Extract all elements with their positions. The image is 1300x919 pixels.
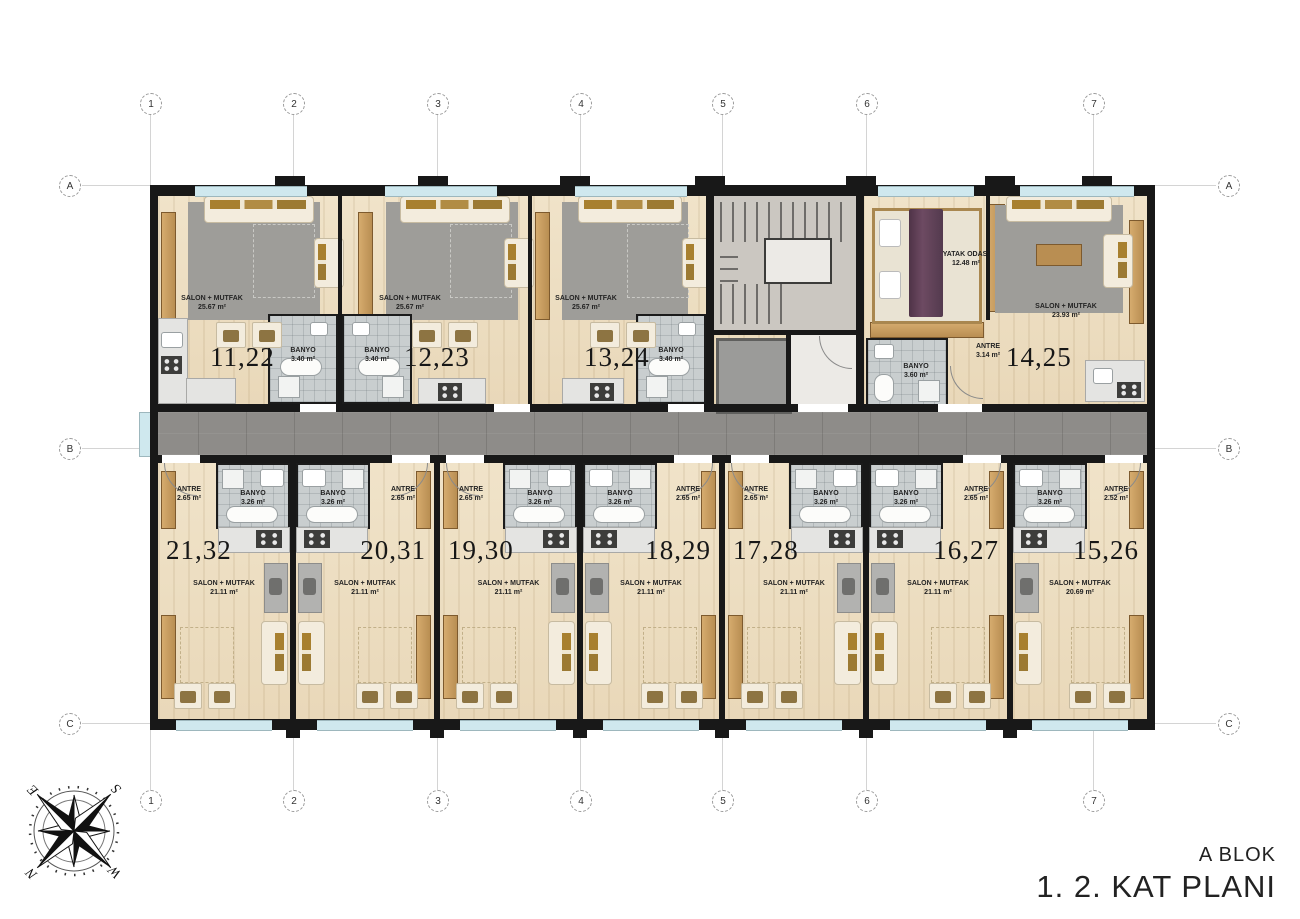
unit-20-31: BANYO3.26 m² ANTRE2.65 m² 20,31 SALON + …	[296, 463, 434, 719]
window	[603, 720, 699, 731]
door-opening	[446, 455, 484, 463]
room-label-banyo: BANYO3.40 m²	[270, 346, 336, 365]
bathroom: BANYO3.26 m²	[216, 463, 290, 529]
sofa-cushion	[875, 633, 884, 671]
bathroom-sink	[678, 322, 696, 336]
bathroom: BANYO3.26 m²	[583, 463, 657, 529]
wardrobe	[416, 615, 431, 699]
washer	[260, 469, 284, 487]
area-rug-outline	[1071, 627, 1125, 683]
grid-bubble-bot-4: 4	[570, 790, 592, 812]
unit-19-30: BANYO3.26 m² ANTRE2.65 m² 19,30 SALON + …	[440, 463, 577, 719]
stove	[304, 530, 330, 548]
unit-16-27: BANYO3.26 m² ANTRE2.65 m² 16,27 SALON + …	[869, 463, 1007, 719]
title-block: A BLOK 1. 2. KAT PLANI	[1036, 844, 1276, 905]
window	[878, 186, 974, 197]
compass-south: S	[109, 780, 125, 796]
stove	[1117, 382, 1141, 398]
armchair-cushion	[686, 244, 694, 280]
bathroom: BANYO3.26 m²	[296, 463, 370, 529]
armchair	[356, 683, 384, 709]
window	[460, 720, 556, 731]
plan-title: 1. 2. KAT PLANI	[1036, 869, 1276, 905]
armchair	[490, 683, 518, 709]
bathroom: BANYO3.40 m²	[342, 314, 412, 404]
room-label-banyo: BANYO3.26 m²	[871, 489, 941, 508]
stairwell	[714, 196, 856, 332]
grid-bubble-right-B: B	[1218, 438, 1240, 460]
unit-number: 21,32	[166, 535, 232, 566]
shower	[278, 376, 300, 398]
area-rug-outline	[358, 627, 412, 683]
grid-bubble-bot-1: 1	[140, 790, 162, 812]
bathroom: BANYO3.26 m²	[869, 463, 943, 529]
wall-core-right	[856, 185, 864, 412]
kitchen-counter	[186, 378, 236, 404]
bathtub	[874, 374, 894, 402]
area-rug-outline	[462, 627, 516, 683]
wardrobe	[989, 615, 1004, 699]
shower	[915, 469, 937, 489]
unit-17-28: BANYO3.26 m² ANTRE2.65 m² 17,28 SALON + …	[725, 463, 863, 719]
washer	[1019, 469, 1043, 487]
wall-divider	[528, 196, 532, 404]
grid-bubble-bot-5: 5	[712, 790, 734, 812]
grid-bubble-top-7: 7	[1083, 93, 1105, 115]
bathtub	[593, 506, 645, 523]
coffee-table	[1036, 244, 1082, 266]
stove	[256, 530, 282, 548]
washer	[302, 469, 326, 487]
bathroom: BANYO3.26 m²	[789, 463, 863, 529]
room-label-salon: SALON + MUTFAK25.67 m²	[538, 294, 634, 313]
door-swing	[950, 366, 983, 399]
bathtub	[513, 506, 565, 523]
wall-divider	[1007, 463, 1013, 719]
pillow	[879, 271, 901, 299]
stair-flight-rail	[720, 246, 738, 282]
armchair-cushion	[318, 244, 326, 280]
room-label-antre: ANTRE2.65 m²	[659, 485, 717, 504]
bathroom: BANYO3.60 m²	[866, 338, 948, 408]
stove	[877, 530, 903, 548]
door-opening	[162, 455, 200, 463]
bathtub	[879, 506, 931, 523]
grid-bubble-left-C: C	[59, 713, 81, 735]
pillow	[879, 219, 901, 247]
unit-12-23: BANYO3.40 m² SALON + MUTFAK25.67 m² 12,2…	[342, 196, 528, 404]
stove	[591, 530, 617, 548]
wall-core-left	[706, 185, 714, 412]
wall-tab	[846, 176, 876, 186]
grid-bubble-top-3: 3	[427, 93, 449, 115]
grid-bubble-top-1: 1	[140, 93, 162, 115]
unit-number: 11,22	[210, 342, 275, 373]
room-label-antre: ANTRE2.65 m²	[374, 485, 432, 504]
unit-number: 17,28	[733, 535, 799, 566]
area-rug-outline	[747, 627, 801, 683]
armchair	[456, 683, 484, 709]
shower	[918, 380, 940, 402]
wall-tab	[418, 176, 448, 186]
sofa-cushions	[1012, 200, 1104, 209]
area-rug-outline	[931, 627, 985, 683]
stove	[161, 356, 182, 374]
sofa-cushions	[584, 200, 674, 209]
block-name: A BLOK	[1036, 844, 1276, 867]
room-label-salon: SALON + MUTFAK20.69 m²	[1013, 579, 1147, 598]
room-label-banyo: BANYO3.26 m²	[505, 489, 575, 508]
bathroom-sink	[874, 344, 894, 359]
armchair	[675, 683, 703, 709]
wall-bedroom-divider	[986, 196, 990, 320]
grid-bubble-top-4: 4	[570, 93, 592, 115]
room-label-salon: SALON + MUTFAK21.11 m²	[158, 579, 290, 598]
unit-number: 14,25	[1006, 342, 1072, 373]
shower	[342, 469, 364, 489]
armchair-cushion	[508, 244, 516, 280]
grid-bubble-right-C: C	[1218, 713, 1240, 735]
grid-bubble-bot-7: 7	[1083, 790, 1105, 812]
sofa-cushion	[589, 633, 598, 671]
grid-bubble-top-2: 2	[283, 93, 305, 115]
door-opening	[494, 404, 530, 412]
armchair	[1069, 683, 1097, 709]
washer	[589, 469, 613, 487]
elevator	[716, 338, 792, 414]
wall-tab	[715, 730, 729, 738]
room-label-banyo: BANYO3.60 m²	[892, 362, 940, 381]
window	[1020, 186, 1134, 197]
wall-core-mid	[714, 330, 856, 335]
shower	[629, 469, 651, 489]
unit-15-26: BANYO3.26 m² ANTRE2.52 m² 15,26 SALON + …	[1013, 463, 1147, 719]
rug-inner	[450, 224, 512, 298]
armchair-cushion	[1118, 242, 1127, 278]
area-rug-outline	[643, 627, 697, 683]
wall-tab	[985, 176, 1015, 186]
sofa-cushion	[562, 633, 571, 671]
armchair	[1103, 683, 1131, 709]
shower	[646, 376, 668, 398]
wall-tab	[430, 730, 444, 738]
wall-tab	[1003, 730, 1017, 738]
room-label-banyo: BANYO3.26 m²	[218, 489, 288, 508]
shower	[1059, 469, 1081, 489]
bathroom: BANYO3.26 m²	[503, 463, 577, 529]
room-label-antre: ANTRE2.52 m²	[1087, 485, 1145, 504]
wall-divider	[434, 463, 440, 719]
sofa-cushion	[1019, 633, 1028, 671]
door-opening	[300, 404, 336, 412]
room-label-antre: ANTRE2.65 m²	[727, 485, 785, 504]
unit-14-25: YATAK ODASI12.48 m² BANYO3.60 m² ANTRE3.…	[864, 196, 1147, 404]
stove	[829, 530, 855, 548]
unit-number: 16,27	[933, 535, 999, 566]
area-rug-outline	[180, 627, 234, 683]
door-opening	[731, 455, 769, 463]
unit-11-22: BANYO3.40 m² SALON + MUTFAK25.67 m² 11,2…	[158, 196, 338, 404]
wardrobe	[870, 322, 984, 338]
unit-18-29: BANYO3.26 m² ANTRE2.65 m² 18,29 SALON + …	[583, 463, 719, 719]
bathtub	[799, 506, 851, 523]
shower	[795, 469, 817, 489]
stove	[1021, 530, 1047, 548]
bathtub	[306, 506, 358, 523]
armchair	[390, 683, 418, 709]
wall-divider	[338, 196, 342, 404]
washer	[833, 469, 857, 487]
grid-bubble-right-A: A	[1218, 175, 1240, 197]
bathroom: BANYO3.26 m²	[1013, 463, 1087, 529]
room-label-salon: SALON + MUTFAK21.11 m²	[725, 579, 863, 598]
room-label-antre: ANTRE2.65 m²	[947, 485, 1005, 504]
washer	[547, 469, 571, 487]
wall-tab	[695, 176, 725, 186]
window	[385, 186, 497, 197]
stove	[590, 383, 614, 401]
door-opening	[798, 404, 848, 412]
room-label-banyo: BANYO3.26 m²	[791, 489, 861, 508]
wall-tab	[560, 176, 590, 186]
door-swing	[819, 336, 852, 369]
armchair	[208, 683, 236, 709]
wall-tab	[1082, 176, 1112, 186]
grid-bubble-bot-2: 2	[283, 790, 305, 812]
window	[575, 186, 687, 197]
door-opening	[668, 404, 704, 412]
grid-bubble-bot-6: 6	[856, 790, 878, 812]
compass-rose: N E S W	[8, 765, 140, 902]
stair-landing	[764, 238, 832, 284]
armchair	[741, 683, 769, 709]
window	[195, 186, 307, 197]
kitchen-sink	[1093, 368, 1113, 384]
grid-bubble-top-6: 6	[856, 93, 878, 115]
armchair	[641, 683, 669, 709]
unit-number: 19,30	[448, 535, 514, 566]
grid-bubble-left-B: B	[59, 438, 81, 460]
unit-number: 15,26	[1073, 535, 1139, 566]
wall-divider	[719, 463, 725, 719]
room-label-salon: SALON + MUTFAK21.11 m²	[440, 579, 577, 598]
wall-elev-lobby	[786, 335, 791, 412]
rug-inner	[627, 224, 689, 298]
room-label-banyo: BANYO3.26 m²	[585, 489, 655, 508]
wall-divider	[863, 463, 869, 719]
sofa-cushion	[302, 633, 311, 671]
rug-inner	[253, 224, 315, 298]
sofa-cushions	[210, 200, 306, 209]
room-label-salon: SALON + MUTFAK21.11 m²	[869, 579, 1007, 598]
window	[1032, 720, 1128, 731]
corridor	[150, 412, 1155, 455]
wall-tab	[859, 730, 873, 738]
grid-bubble-top-5: 5	[712, 93, 734, 115]
sofa-cushions	[406, 200, 502, 209]
wall-divider	[290, 463, 296, 719]
room-label-banyo: BANYO3.26 m²	[298, 489, 368, 508]
room-label-salon: SALON + MUTFAK23.93 m²	[1016, 302, 1116, 321]
room-label-antre: ANTRE2.65 m²	[442, 485, 500, 504]
stove	[438, 383, 462, 401]
room-label-antre: ANTRE2.65 m²	[160, 485, 218, 504]
shower	[382, 376, 404, 398]
door-opening	[392, 455, 430, 463]
door-opening	[674, 455, 712, 463]
bathtub	[226, 506, 278, 523]
wall-tab	[573, 730, 587, 738]
door-opening	[1105, 455, 1143, 463]
unit-13-24: BANYO3.40 m² SALON + MUTFAK25.67 m² 13,2…	[532, 196, 706, 404]
door-opening	[963, 455, 1001, 463]
washer	[875, 469, 899, 487]
wall-divider	[577, 463, 583, 719]
armchair	[929, 683, 957, 709]
sofa-cushion	[848, 633, 857, 671]
bathroom-sink	[310, 322, 328, 336]
wardrobe	[701, 615, 716, 699]
shower	[509, 469, 531, 489]
window	[746, 720, 842, 731]
wall-tab	[275, 176, 305, 186]
core-lobby	[791, 334, 856, 412]
stove	[543, 530, 569, 548]
sofa-cushion	[275, 633, 284, 671]
unit-number: 12,23	[404, 342, 470, 373]
window	[176, 720, 272, 731]
unit-21-32: BANYO3.26 m² ANTRE2.65 m² 21,32 SALON + …	[158, 463, 290, 719]
stair-flight	[720, 202, 850, 242]
bathroom-sink	[352, 322, 370, 336]
unit-number: 18,29	[645, 535, 711, 566]
armchair	[174, 683, 202, 709]
floor-plan-sheet: { "title": { "block": "A BLOK", "floor_p…	[0, 0, 1300, 919]
wall-corridor-bottom	[150, 455, 1155, 463]
room-label-salon: SALON + MUTFAK21.11 m²	[296, 579, 434, 598]
room-label-bedroom: YATAK ODASI12.48 m²	[916, 250, 1016, 269]
shower	[222, 469, 244, 489]
kitchen-sink	[161, 332, 183, 348]
window	[317, 720, 413, 731]
wardrobe	[1129, 615, 1144, 699]
wall-tab	[286, 730, 300, 738]
room-label-salon: SALON + MUTFAK21.11 m²	[583, 579, 719, 598]
room-label-banyo: BANYO3.40 m²	[344, 346, 410, 365]
armchair	[775, 683, 803, 709]
room-label-salon: SALON + MUTFAK25.67 m²	[164, 294, 260, 313]
room-label-banyo: BANYO3.26 m²	[1015, 489, 1085, 508]
bathtub	[1023, 506, 1075, 523]
window	[890, 720, 986, 731]
door-opening	[938, 404, 982, 412]
unit-number: 13,24	[584, 342, 650, 373]
grid-bubble-bot-3: 3	[427, 790, 449, 812]
armchair	[963, 683, 991, 709]
room-label-salon: SALON + MUTFAK25.67 m²	[362, 294, 458, 313]
grid-bubble-left-A: A	[59, 175, 81, 197]
unit-number: 20,31	[360, 535, 426, 566]
stair-flight	[720, 284, 790, 324]
